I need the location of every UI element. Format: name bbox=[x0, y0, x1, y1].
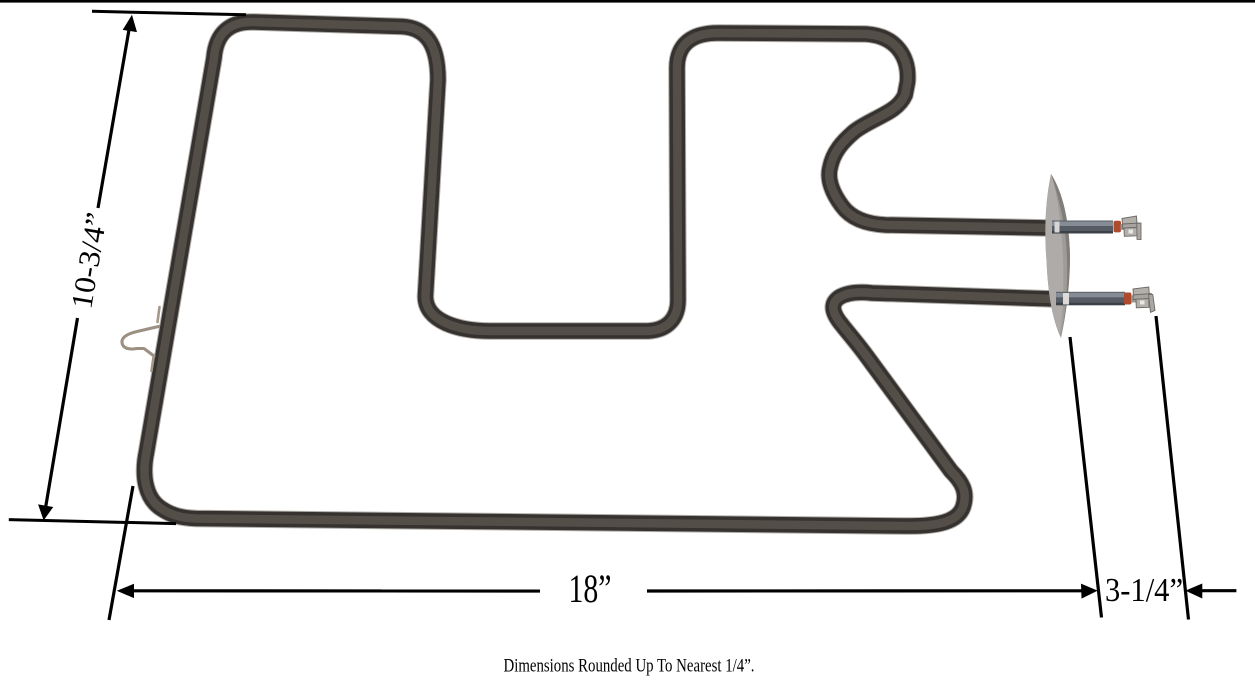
svg-text:10-3/4”: 10-3/4” bbox=[65, 210, 114, 311]
svg-text:3-1/4”: 3-1/4” bbox=[1105, 572, 1183, 609]
svg-text:Dimensions Rounded Up To Neare: Dimensions Rounded Up To Nearest 1/4”. bbox=[504, 657, 755, 677]
svg-text:18”: 18” bbox=[569, 566, 612, 611]
